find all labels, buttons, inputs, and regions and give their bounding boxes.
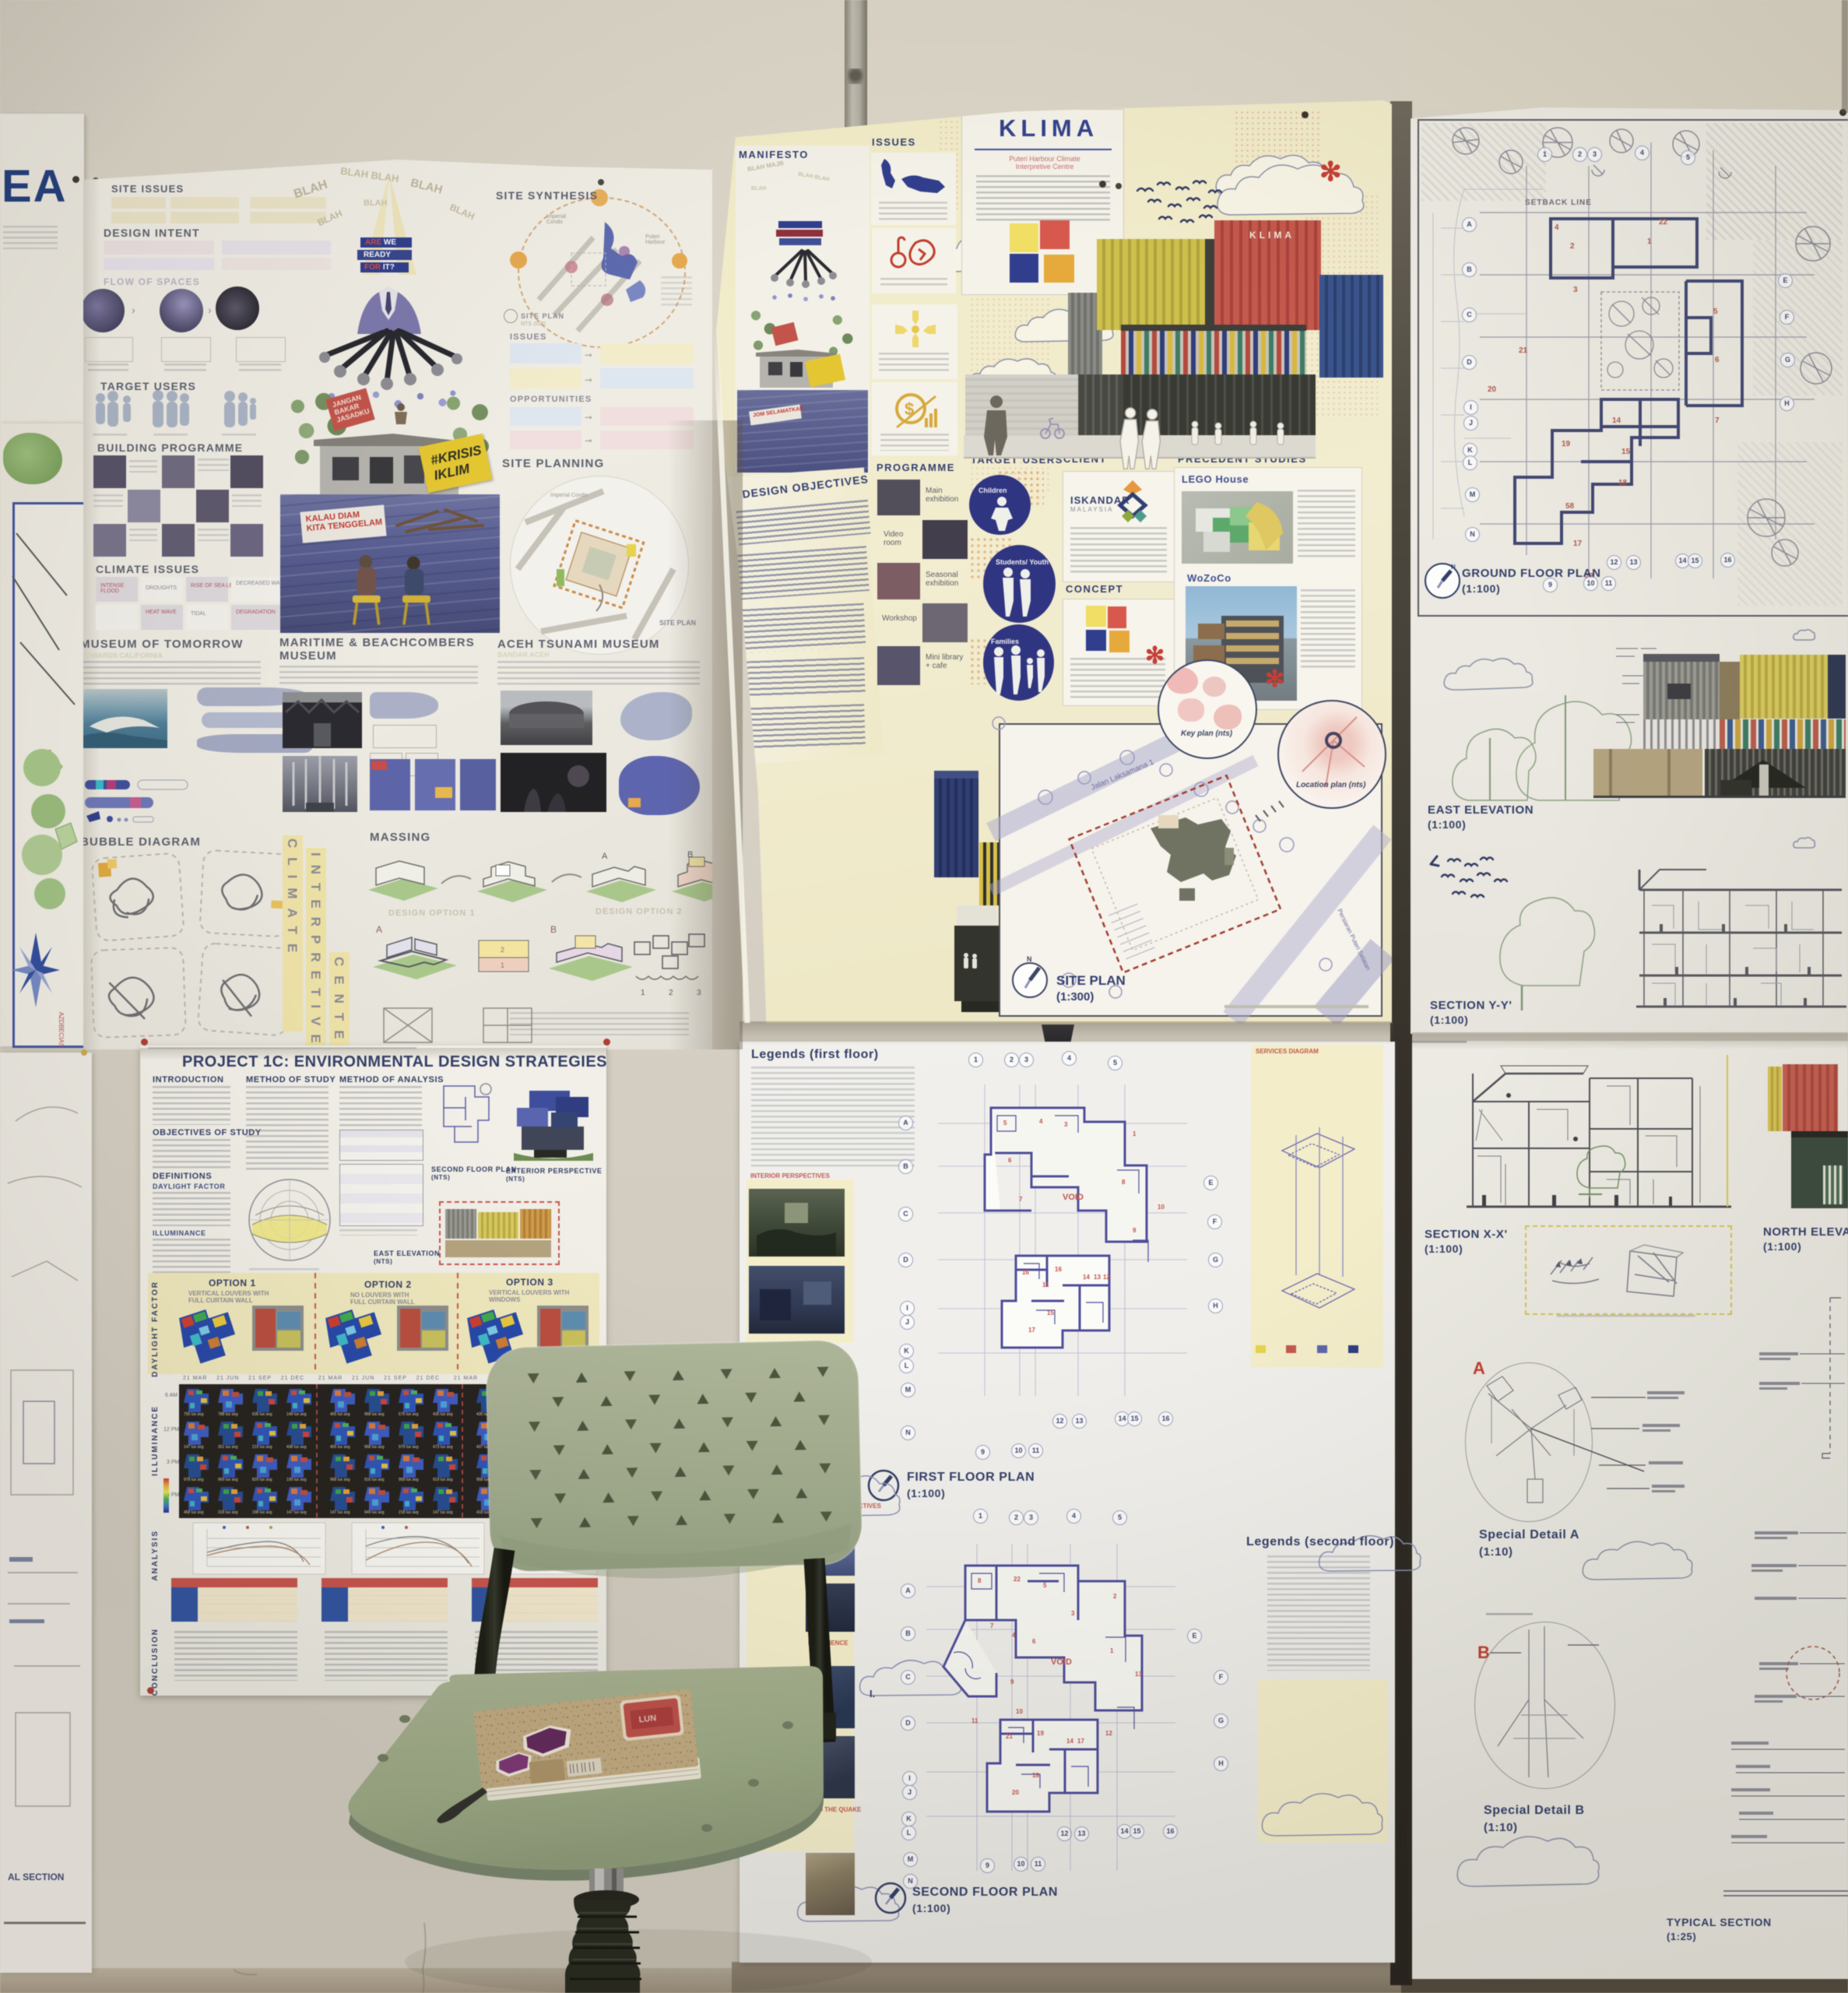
svg-text:LUN: LUN [638,1714,657,1724]
